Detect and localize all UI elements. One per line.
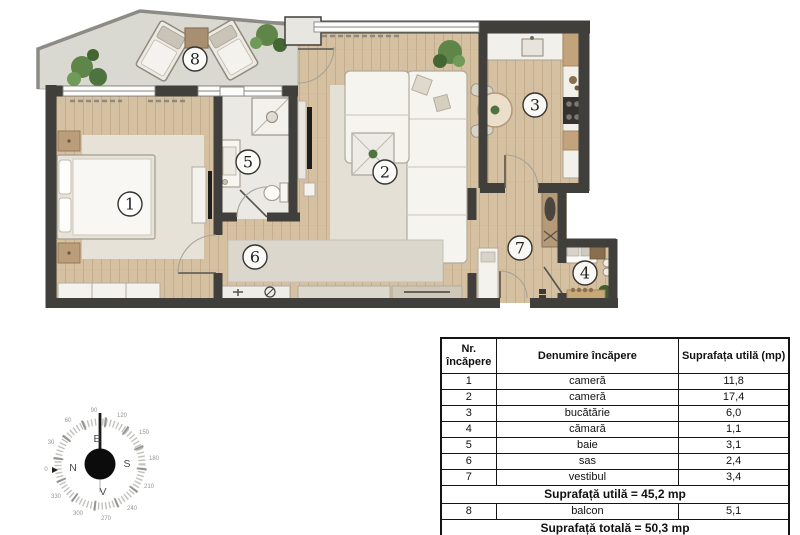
- svg-text:N: N: [69, 462, 77, 474]
- cell-name: cămară: [496, 422, 679, 438]
- cell-area: 5,1: [679, 504, 789, 520]
- floorplan-page: 1 2 3 4 5 6 7 8: [0, 0, 800, 535]
- compass-zero-marker: [52, 467, 58, 473]
- room-label-2: 2: [373, 160, 397, 184]
- svg-text:2: 2: [380, 163, 390, 182]
- cell-nr: 1: [441, 374, 496, 390]
- table-header-row: Nr. încăpere Denumire încăpere Suprafața…: [441, 338, 789, 374]
- table-row: 4 cămară 1,1: [441, 422, 789, 438]
- cell-area: 3,4: [679, 470, 789, 486]
- toilet-bowl: [264, 186, 280, 201]
- svg-text:90: 90: [91, 408, 98, 414]
- room-label-5: 5: [236, 150, 260, 174]
- table-row: 6 sas 2,4: [441, 454, 789, 470]
- bedroom-dresser: [58, 283, 160, 299]
- cell-nr: 7: [441, 470, 496, 486]
- compass-rose: 0 30 60 90 120 150 180 210 240 270 300 3…: [30, 398, 170, 533]
- cell-name: bucătărie: [496, 406, 679, 422]
- cell-area: 1,1: [679, 422, 789, 438]
- table-row: 7 vestibul 3,4: [441, 470, 789, 486]
- media-unit: [304, 183, 315, 196]
- cell-name: balcon: [496, 504, 679, 520]
- header-nr: Nr. încăpere: [441, 338, 496, 374]
- svg-text:0: 0: [44, 467, 48, 473]
- svg-text:150: 150: [139, 430, 150, 436]
- svg-text:270: 270: [101, 516, 112, 522]
- cell-area: 17,4: [679, 390, 789, 406]
- cell-area: 2,4: [679, 454, 789, 470]
- total-label: Suprafață totală = 50,3 mp: [441, 520, 789, 535]
- svg-text:4: 4: [580, 264, 590, 283]
- room-label-7: 7: [508, 236, 532, 260]
- svg-text:30: 30: [48, 440, 55, 446]
- tv: [208, 171, 212, 219]
- header-name: Denumire încăpere: [496, 338, 679, 374]
- knob: [67, 251, 70, 254]
- cell-nr: 4: [441, 422, 496, 438]
- table-subtotal-row: Suprafață utilă = 45,2 mp: [441, 486, 789, 504]
- cell-nr: 3: [441, 406, 496, 422]
- room-label-3: 3: [523, 93, 547, 117]
- header-area: Suprafața utilă (mp): [679, 338, 789, 374]
- svg-text:S: S: [123, 458, 130, 470]
- cell-nr: 8: [441, 504, 496, 520]
- svg-text:60: 60: [65, 418, 72, 424]
- cell-nr: 5: [441, 438, 496, 454]
- svg-text:1: 1: [125, 195, 135, 214]
- svg-text:180: 180: [149, 456, 160, 462]
- cell-name: vestibul: [496, 470, 679, 486]
- room-label-4: 4: [573, 261, 597, 285]
- svg-text:210: 210: [144, 484, 155, 490]
- svg-text:E: E: [93, 433, 100, 445]
- shoes: [539, 289, 546, 294]
- table-row: 1 cameră 11,8: [441, 374, 789, 390]
- cell-name: cameră: [496, 374, 679, 390]
- room-label-1: 1: [118, 192, 142, 216]
- cell-name: baie: [496, 438, 679, 454]
- sofa-pillow: [433, 94, 450, 111]
- cell-area: 3,1: [679, 438, 789, 454]
- svg-text:V: V: [99, 486, 106, 498]
- balcony-table: [185, 28, 208, 48]
- pillow: [59, 160, 71, 194]
- table-total-row: Suprafață totală = 50,3 mp: [441, 520, 789, 535]
- floor-plan: 1 2 3 4 5 6 7 8: [30, 5, 630, 335]
- knob: [67, 139, 70, 142]
- tv-console: [192, 167, 206, 223]
- table-row: 3 bucătărie 6,0: [441, 406, 789, 422]
- tv-shelf: [298, 101, 306, 179]
- table-row: 2 cameră 17,4: [441, 390, 789, 406]
- area-table: Nr. încăpere Denumire încăpere Suprafața…: [440, 337, 790, 535]
- cell-area: 6,0: [679, 406, 789, 422]
- pillow: [59, 198, 71, 232]
- svg-text:6: 6: [250, 248, 260, 267]
- table-row: 5 baie 3,1: [441, 438, 789, 454]
- svg-text:5: 5: [243, 153, 253, 172]
- svg-text:240: 240: [127, 506, 138, 512]
- svg-text:330: 330: [51, 494, 62, 500]
- svg-text:120: 120: [117, 413, 128, 419]
- cell-name: cameră: [496, 390, 679, 406]
- compass-center: [85, 449, 116, 480]
- cell-name: sas: [496, 454, 679, 470]
- room-label-8: 8: [183, 47, 207, 71]
- cell-area: 11,8: [679, 374, 789, 390]
- kitchen-accessories: [569, 76, 577, 84]
- sink-basin: [223, 147, 236, 175]
- plant: [491, 106, 500, 115]
- subtotal-label: Suprafață utilă = 45,2 mp: [441, 486, 789, 504]
- table-balcony-row: 8 balcon 5,1: [441, 504, 789, 520]
- shoe-bench: [222, 286, 290, 299]
- svg-text:7: 7: [515, 239, 525, 258]
- svg-text:3: 3: [530, 96, 540, 115]
- cell-nr: 6: [441, 454, 496, 470]
- plant: [369, 150, 378, 159]
- coat: [545, 197, 556, 221]
- shower-head: [267, 112, 278, 123]
- svg-text:8: 8: [190, 50, 200, 69]
- stove: [563, 97, 581, 124]
- kitchen-sink: [522, 39, 543, 56]
- toilet-tank: [280, 183, 288, 202]
- tv: [307, 107, 312, 169]
- wardrobe: [298, 286, 390, 299]
- room-label-6: 6: [243, 245, 267, 269]
- cell-nr: 2: [441, 390, 496, 406]
- svg-text:300: 300: [73, 511, 84, 517]
